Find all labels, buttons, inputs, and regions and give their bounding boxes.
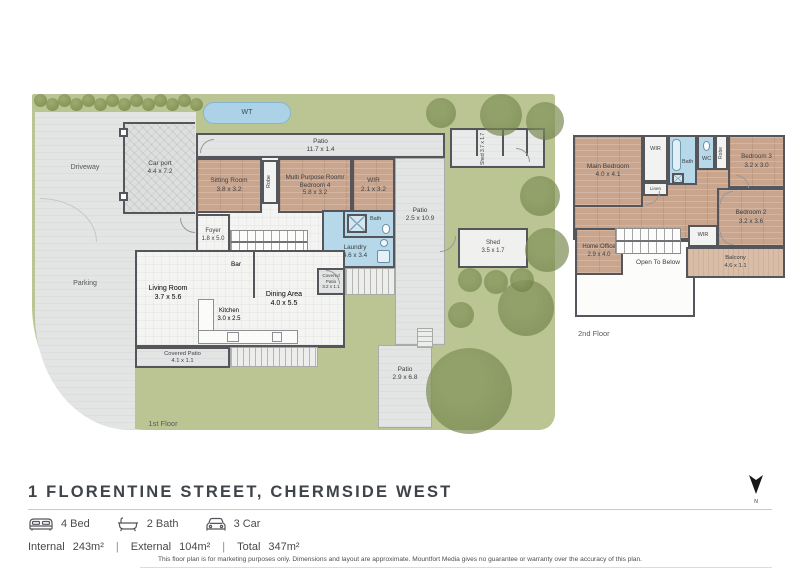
- balcony: Balcony 4.6 x 1.1: [686, 247, 785, 278]
- room-dims: 3.2 x 3.0: [744, 162, 768, 170]
- room-dims: 3.0 x 2.5: [199, 316, 259, 324]
- bath-summary: 2 Bath: [116, 516, 179, 532]
- room-label: Shed: [480, 153, 486, 165]
- cooktop: [227, 332, 239, 342]
- car-summary: 3 Car: [205, 516, 261, 532]
- bed-icon: [28, 516, 54, 532]
- room-label: Robe: [718, 147, 725, 159]
- water-tank: WT: [203, 102, 291, 124]
- bar-label: Bar: [223, 261, 249, 269]
- sink: [380, 239, 388, 247]
- page-title: 1 FLORENTINE STREET, CHERMSIDE WEST: [28, 483, 452, 502]
- kitchen-bench: [198, 330, 298, 344]
- room-dims: 3.7 x 5.6: [127, 293, 209, 302]
- north-arrow-icon: [748, 474, 764, 495]
- separator: |: [116, 541, 119, 553]
- room-label: Robe: [266, 175, 273, 188]
- separator: |: [222, 541, 225, 553]
- bed-summary: 4 Bed: [28, 516, 90, 532]
- room-dims: 4.6 x 1.1: [724, 263, 746, 271]
- bush: [448, 302, 474, 328]
- shower: [347, 214, 367, 233]
- carport: Car port 4.4 x 7.2: [123, 122, 195, 214]
- wir-bedroom2: WIR: [688, 225, 718, 247]
- room-label: WIR: [650, 146, 661, 153]
- compass: N: [747, 474, 765, 505]
- room-dims: 2.5 x 10.9: [406, 215, 435, 223]
- wir-main: WIR: [643, 135, 668, 182]
- bath-icon: [116, 516, 140, 532]
- room-label: Sitting Room: [210, 177, 247, 185]
- living-room-label: Living Room 3.7 x 5.6: [127, 284, 209, 302]
- deck-steps: [230, 347, 318, 367]
- room-label: Car port: [148, 160, 171, 168]
- patio-steps: [417, 328, 433, 348]
- carport-post: [119, 128, 128, 137]
- second-floor-label: 2nd Floor: [578, 329, 610, 338]
- toilet: [703, 141, 710, 151]
- bed-count: 4 Bed: [61, 518, 90, 530]
- tree: [480, 94, 522, 136]
- robe-closet: Robe: [262, 160, 278, 204]
- floorplan-page: Driveway Parking WT Car port 4.4 x 7.2 P…: [0, 0, 800, 570]
- room-dims: 4.4 x 7.2: [148, 168, 173, 176]
- room-label: WIR: [367, 177, 380, 185]
- shed-mid: Shed 3.5 x 1.7: [458, 228, 528, 268]
- tree: [426, 348, 512, 434]
- tree: [525, 228, 569, 272]
- summary-row: 4 Bed 2 Bath 3 Car: [28, 516, 260, 532]
- bush: [458, 268, 482, 292]
- bath-count: 2 Bath: [147, 518, 179, 530]
- room-label: Foyer: [205, 228, 220, 236]
- compass-label: N: [747, 500, 765, 505]
- room-label: Main Bedroom: [587, 163, 629, 171]
- kitchen-label: Kitchen 3.0 x 2.5: [199, 308, 259, 324]
- title-divider: [28, 509, 772, 510]
- kitchen-sink: [272, 332, 282, 342]
- room-label: Kitchen: [199, 308, 259, 316]
- room-label: Bath: [370, 216, 381, 222]
- footer-rule: [140, 567, 772, 568]
- room-label: Shed: [486, 240, 500, 248]
- robe-2f: Robe: [715, 135, 728, 170]
- shed-divider: [476, 130, 478, 156]
- room-dims: 3.2 x 1.1: [322, 284, 340, 290]
- room-label: Patio: [313, 138, 328, 145]
- room-label: Bath: [682, 159, 693, 165]
- internal-value: 243m²: [73, 541, 104, 553]
- tree: [426, 98, 456, 128]
- tree: [526, 102, 564, 140]
- room-dims: 4.0 x 4.1: [596, 171, 621, 179]
- first-floor-plan: Driveway Parking WT Car port 4.4 x 7.2 P…: [28, 92, 558, 440]
- room-dims: 3.2 x 3.6: [739, 218, 763, 226]
- room-dims: 11.7 x 1.4: [306, 146, 334, 153]
- room-dims: 4.1 x 1.1: [171, 358, 193, 365]
- areas-row: Internal 243m² | External 104m² | Total …: [28, 541, 300, 553]
- water-tank-label: WT: [242, 108, 253, 117]
- room-label: WIR: [698, 232, 709, 239]
- bathroom: Bath: [343, 212, 393, 238]
- room-label: Patio: [413, 207, 428, 215]
- toilet: [382, 224, 390, 234]
- bathtub: [672, 139, 681, 171]
- main-bedroom: Main Bedroom 4.0 x 4.1: [573, 135, 643, 207]
- total-value: 347m²: [268, 541, 299, 553]
- room-dims: 3.7 x 1.7: [480, 133, 486, 152]
- room-label2: Bedroom 4: [300, 182, 331, 190]
- second-floor-plan: Open To Below Main Bedroom 4.0 x 4.1 WIR…: [570, 133, 798, 345]
- side-steps: [345, 268, 395, 295]
- room-label: Bedroom 3: [741, 153, 772, 161]
- staircase-2f: [615, 228, 681, 254]
- driveway-label: Driveway: [55, 164, 115, 171]
- total-label: Total: [237, 541, 260, 553]
- room-label: Bedroom 2: [736, 209, 767, 217]
- shower: [672, 173, 684, 184]
- room-dims: 5.8 x 3.2: [303, 189, 327, 197]
- patio-bottom: Patio 2.9 x 6.8: [378, 345, 432, 428]
- tree: [520, 176, 560, 216]
- room-dims: 3.8 x 3.2: [217, 186, 242, 194]
- wc-room: WC: [697, 135, 715, 170]
- parking-label: Parking: [55, 280, 115, 287]
- car-icon: [205, 516, 227, 532]
- room-label: Patio: [398, 366, 413, 374]
- room-dims: 1.8 x 5.0: [201, 236, 224, 244]
- carport-post: [119, 192, 128, 201]
- room-label: Covered Patio: [164, 351, 201, 358]
- room-dims: 2.9 x 6.8: [393, 374, 418, 382]
- covered-patio-left: Covered Patio 4.1 x 1.1: [135, 347, 230, 368]
- multi-purpose-room: Multi Purpose Room/ Bedroom 4 5.8 x 3.2: [278, 158, 352, 213]
- room-label: Living Room: [127, 284, 209, 293]
- living-dining-block: Bar Living Room 3.7 x 5.6 Dining Area 4.…: [135, 250, 345, 347]
- washer: [377, 250, 390, 263]
- disclaimer: This floor plan is for marketing purpose…: [0, 556, 800, 563]
- room-label: WC: [702, 156, 711, 162]
- room-dims: 2.1 x 3.2: [361, 186, 386, 194]
- bush: [510, 268, 534, 292]
- external-label: External: [131, 541, 171, 553]
- hedge-row: [35, 94, 203, 107]
- external-value: 104m²: [179, 541, 210, 553]
- bush: [484, 270, 508, 294]
- room-dims: 3.5 x 1.7: [481, 248, 504, 256]
- patio-right: Patio 2.5 x 10.9: [395, 158, 445, 345]
- car-count: 3 Car: [234, 518, 261, 530]
- bathroom-2f: Bath: [668, 135, 697, 185]
- room-dims: 2.9 x 4.0: [587, 252, 610, 260]
- room-label: Home Office: [582, 244, 615, 252]
- room-label: Balcony: [725, 255, 746, 263]
- first-floor-label: 1st Floor: [128, 419, 198, 428]
- sitting-room: Sitting Room 3.8 x 3.2: [196, 158, 262, 213]
- room-label: Multi Purpose Room/: [286, 174, 345, 182]
- internal-label: Internal: [28, 541, 65, 553]
- room-label: Dining Area: [243, 290, 325, 299]
- shed-top-label: Shed 3.7 x 1.7: [480, 131, 486, 165]
- room-dims: 4.0 x 5.5: [243, 299, 325, 308]
- dining-area-label: Dining Area 4.0 x 5.5: [243, 290, 325, 308]
- patio-top: Patio 11.7 x 1.4: [196, 133, 445, 158]
- wir-room: WIR 2.1 x 3.2: [352, 158, 395, 213]
